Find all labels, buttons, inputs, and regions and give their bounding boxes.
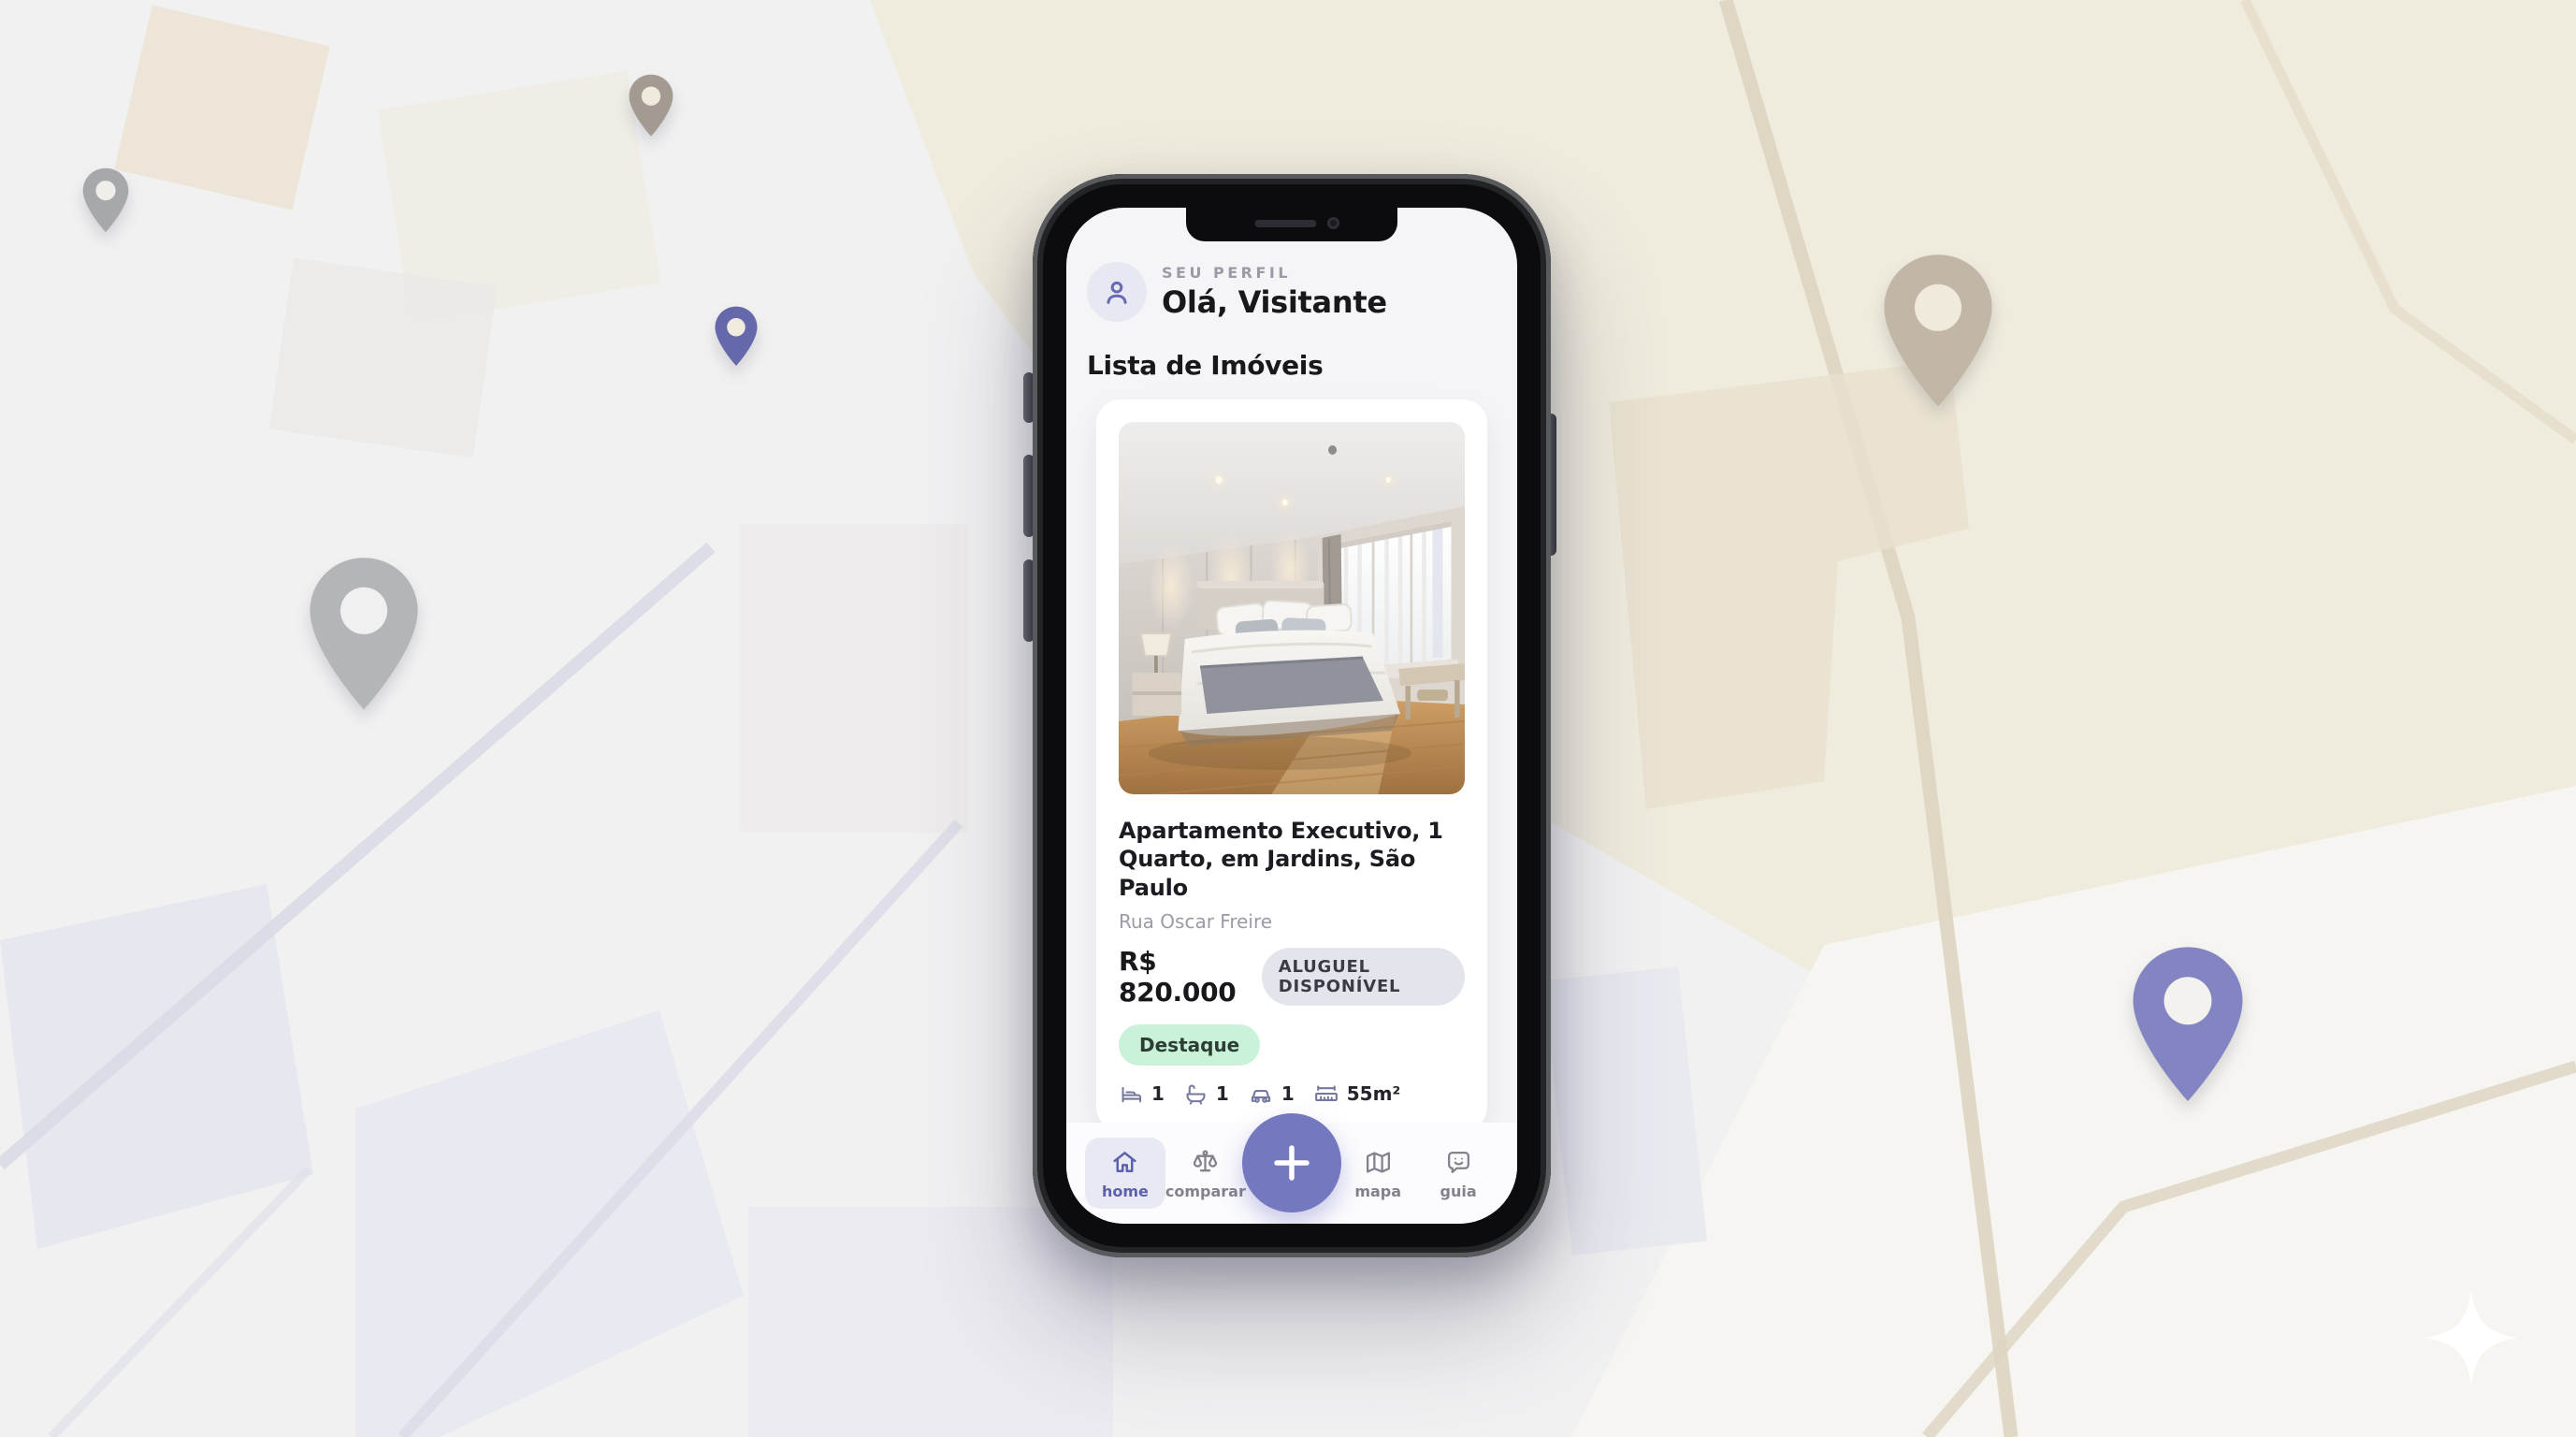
amenities-row: 1 1 1 [1119, 1081, 1465, 1107]
highlight-badge: Destaque [1119, 1024, 1260, 1066]
sparkle-icon [2424, 1291, 2518, 1385]
greeting-text: Olá, Visitante [1162, 284, 1387, 320]
speaker-slot [1254, 220, 1316, 227]
bedrooms-value: 1 [1151, 1082, 1165, 1105]
map-pin-icon [713, 305, 760, 368]
nav-label: comparar [1165, 1183, 1246, 1200]
map-pin-icon [1878, 251, 1998, 411]
nav-tab-home[interactable]: home [1085, 1138, 1165, 1209]
phone-screen: SEU PERFIL Olá, Visitante Lista de Imóve… [1066, 208, 1517, 1224]
ruler-icon [1313, 1081, 1339, 1107]
nav-label: mapa [1354, 1183, 1401, 1200]
bedroom-photo-illustration [1119, 422, 1465, 794]
nav-label: home [1102, 1183, 1149, 1200]
scales-icon [1191, 1148, 1220, 1177]
parking-amenity: 1 [1248, 1081, 1295, 1107]
listing-photo [1119, 422, 1465, 794]
map-pin-icon [2127, 943, 2249, 1105]
nav-tab-comparar[interactable]: comparar [1165, 1138, 1246, 1209]
listing-price: R$ 820.000 [1119, 946, 1245, 1008]
nav-tab-mapa[interactable]: mapa [1338, 1138, 1418, 1209]
phone-frame: SEU PERFIL Olá, Visitante Lista de Imóve… [1033, 174, 1551, 1257]
bath-icon [1183, 1081, 1208, 1107]
listing-card[interactable]: Apartamento Executivo, 1 Quarto, em Jard… [1096, 399, 1487, 1131]
profile-label: SEU PERFIL [1162, 264, 1387, 282]
parking-value: 1 [1281, 1082, 1295, 1105]
map-pin-icon [627, 73, 675, 138]
plus-icon [1270, 1141, 1313, 1184]
phone-notch [1186, 208, 1397, 241]
area-amenity: 55m² [1313, 1081, 1400, 1107]
nav-tab-guia[interactable]: guia [1418, 1138, 1498, 1209]
avatar[interactable] [1087, 262, 1147, 322]
bathrooms-amenity: 1 [1183, 1081, 1229, 1107]
map-pin-icon [80, 167, 131, 234]
listing-title: Apartamento Executivo, 1 Quarto, em Jard… [1119, 817, 1465, 902]
home-icon [1110, 1148, 1139, 1177]
map-pin-icon [304, 554, 424, 714]
page-title: Lista de Imóveis [1087, 350, 1497, 381]
chat-guide-icon [1444, 1148, 1473, 1177]
area-value: 55m² [1347, 1082, 1400, 1105]
profile-header: SEU PERFIL Olá, Visitante [1087, 262, 1497, 322]
marketing-mockup: SEU PERFIL Olá, Visitante Lista de Imóve… [0, 0, 2576, 1437]
map-icon [1364, 1148, 1393, 1177]
car-icon [1248, 1081, 1274, 1107]
nav-label: guia [1440, 1183, 1477, 1200]
listing-address: Rua Oscar Freire [1119, 910, 1465, 933]
add-listing-fab[interactable] [1242, 1113, 1341, 1212]
bedrooms-amenity: 1 [1119, 1081, 1165, 1107]
bed-icon [1119, 1081, 1144, 1107]
user-icon [1102, 277, 1132, 307]
front-camera [1327, 217, 1339, 229]
bathrooms-value: 1 [1216, 1082, 1229, 1105]
status-badge: ALUGUEL DISPONÍVEL [1262, 948, 1465, 1006]
